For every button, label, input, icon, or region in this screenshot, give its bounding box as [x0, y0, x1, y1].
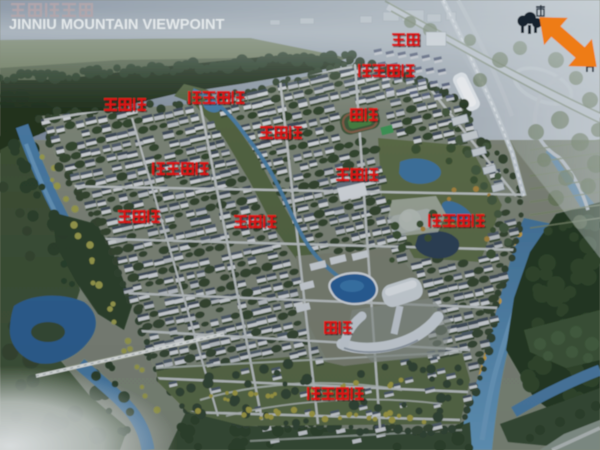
svg-text:JINNIU MOUNTAIN VIEWPOINT: JINNIU MOUNTAIN VIEWPOINT — [9, 17, 224, 33]
